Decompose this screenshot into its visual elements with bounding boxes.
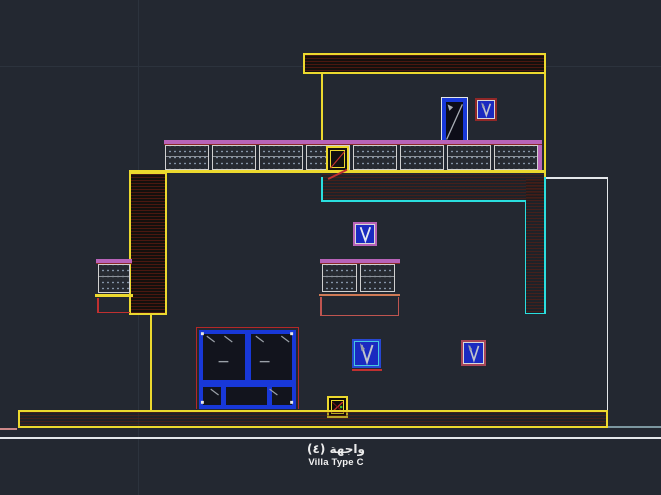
cad-canvas[interactable]: واجهة (٤) Villa Type C: [0, 0, 661, 495]
roof-wall-line-right[interactable]: [544, 74, 546, 178]
railing-end-cap: [538, 145, 542, 170]
ground-line-bottom[interactable]: [18, 426, 608, 428]
drawing-title-arabic[interactable]: واجهة (٤): [236, 443, 436, 457]
vent-symbol-underline: [352, 369, 382, 371]
ground-band-left-cap: [18, 410, 20, 428]
balcony-slab-right: [398, 297, 400, 316]
railing-panel: [353, 145, 397, 170]
vent-symbol-ground-left[interactable]: [352, 339, 381, 368]
left-column[interactable]: [129, 172, 167, 315]
drawing-title-english[interactable]: Villa Type C: [236, 458, 436, 469]
vent-symbol-upper[interactable]: [353, 222, 377, 246]
left-wall-line-lower[interactable]: [150, 315, 152, 410]
balcony-railing[interactable]: [320, 259, 400, 297]
glass-hatch-marks: [197, 328, 298, 409]
ground-line-top[interactable]: [18, 410, 608, 412]
balcony-sill: [319, 294, 400, 297]
railing-panel: [494, 145, 538, 170]
vent-v-icon: [355, 224, 375, 244]
left-window[interactable]: [96, 259, 132, 297]
balcony-slab-left: [320, 297, 322, 316]
setback-outline-inner-vertical[interactable]: [525, 200, 527, 314]
door-swing-icon: [442, 98, 467, 144]
balcony-panel: [322, 264, 357, 292]
vent-v-icon: [477, 100, 495, 119]
frame-line: [0, 437, 661, 439]
boundary-line-right[interactable]: [607, 177, 609, 411]
railing-panel: [400, 145, 444, 170]
slab-hatch-band: [322, 174, 544, 200]
vent-v-icon: [463, 342, 484, 364]
roof-door[interactable]: [441, 97, 468, 145]
roof-wall-line-left[interactable]: [321, 74, 323, 141]
railing-panel: [212, 145, 256, 170]
setback-outline-right-vertical[interactable]: [544, 177, 546, 314]
vent-symbol-ground-right[interactable]: [461, 340, 486, 366]
balcony-panel: [360, 264, 395, 292]
ground-band-fill: [19, 412, 607, 426]
setback-outline-top[interactable]: [321, 200, 526, 202]
roof-parapet[interactable]: [303, 53, 546, 74]
left-window-panel: [98, 264, 130, 293]
ground-pink-segment: [0, 428, 17, 430]
main-window[interactable]: [196, 327, 299, 409]
left-slab-edge-bottom: [97, 312, 130, 314]
title-block: واجهة (٤) Villa Type C: [236, 443, 436, 469]
ground-line-continuation: [608, 426, 661, 428]
vent-v-icon: [354, 341, 379, 366]
railing-panel: [165, 145, 209, 170]
railing-panel: [259, 145, 303, 170]
right-wall-hatch-strip: [526, 179, 544, 313]
gate-swing-icon: [328, 148, 347, 170]
main-railing[interactable]: [164, 140, 542, 173]
balcony-slab-bottom: [320, 315, 399, 317]
boundary-line-top[interactable]: [546, 177, 607, 179]
vent-symbol-roof[interactable]: [475, 98, 497, 121]
left-window-sill: [95, 294, 133, 297]
setback-outline-left[interactable]: [321, 177, 323, 201]
railing-panel: [447, 145, 491, 170]
setback-outline-bottom[interactable]: [525, 313, 546, 315]
